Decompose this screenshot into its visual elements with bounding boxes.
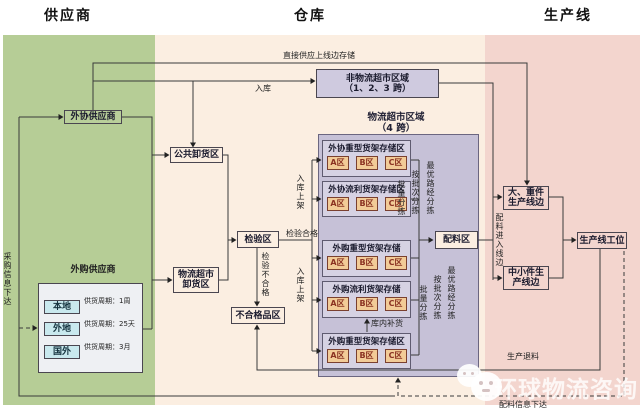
storage-area-purchased-heavy-2: 外购重型货架存储区 A区 B区 C区 bbox=[322, 333, 411, 369]
zone-cell: B区 bbox=[356, 256, 378, 270]
production-return-label: 生产退料 bbox=[507, 352, 539, 361]
defective-goods-box: 不合格品区 bbox=[231, 307, 285, 324]
zone-cell: A区 bbox=[327, 256, 349, 270]
supplier-nonlocal-box: 外地 bbox=[44, 322, 80, 336]
purchase-info-label: 采购信息下达 bbox=[3, 252, 12, 306]
storage-area-purchased-heavy: 外购重型货架存储 A区 B区 C区 bbox=[322, 240, 411, 277]
non-supermarket-area-box: 非物流超市区域 （1、2、3 跨） bbox=[316, 69, 439, 98]
logistics-flow-diagram: 供应商 仓库 生产线 bbox=[0, 0, 640, 415]
non-supermarket-line1: 非物流超市区域 bbox=[346, 74, 409, 84]
purchased-supplier-label: 外购供应商 bbox=[58, 266, 128, 275]
non-supermarket-line2: （1、2、3 跨） bbox=[344, 84, 411, 94]
inspection-box: 检验区 bbox=[237, 231, 279, 248]
zone-cell: B区 bbox=[356, 156, 378, 170]
inbound-label: 入库 bbox=[255, 84, 271, 93]
zone-cell: B区 bbox=[356, 197, 378, 211]
sort-label-route-lower: 最优路经分拣 bbox=[447, 266, 456, 320]
sort-label-route-upper: 最优路经分拣 bbox=[426, 161, 435, 215]
zone-cell: A区 bbox=[327, 156, 349, 170]
zone-cell: A区 bbox=[327, 297, 349, 311]
supermarket-area-label: 物流超市区域 （4 跨） bbox=[336, 113, 456, 134]
zone-cell: C区 bbox=[385, 297, 407, 311]
shelving-label-lower: 入库上架 bbox=[296, 267, 305, 303]
zone-cell: C区 bbox=[385, 349, 407, 363]
zone-cell: A区 bbox=[327, 197, 349, 211]
inspection-pass-label: 检验合格 bbox=[286, 229, 318, 238]
supply-cycle-foreign: 供货周期：3月 bbox=[84, 342, 130, 352]
supplier-local-box: 本地 bbox=[44, 300, 80, 314]
zone-cell: C区 bbox=[385, 156, 407, 170]
zone-cell: C区 bbox=[385, 256, 407, 270]
sort-label-batch-lower: 批量分拣 bbox=[419, 285, 428, 321]
production-station-box: 生产线工位 bbox=[577, 232, 627, 249]
heavy-lineside-box: 大、重件 生产线边 bbox=[503, 186, 549, 210]
supply-cycle-nonlocal: 供货周期：25天 bbox=[84, 319, 135, 329]
zone-cell: A区 bbox=[327, 349, 349, 363]
feed-lineside-label: 配料进入线边 bbox=[495, 213, 504, 267]
batching-area-box: 配料区 bbox=[435, 231, 478, 249]
sort-label-bylot-lower: 按批次分拣 bbox=[433, 275, 442, 320]
outsourced-supplier-box: 外协供应商 bbox=[64, 110, 122, 124]
storage-area-outsourced-heavy: 外协重型货架存储区 A区 B区 C区 bbox=[322, 140, 411, 177]
shelving-label-upper: 入库上架 bbox=[296, 174, 305, 210]
zone-cell: B区 bbox=[356, 297, 378, 311]
zone-cell: B区 bbox=[356, 349, 378, 363]
direct-supply-label: 直接供应上线边存储 bbox=[283, 51, 355, 60]
small-lineside-box: 中小件生 产线边 bbox=[503, 266, 549, 290]
supermarket-unloading-box: 物流超市 卸货区 bbox=[173, 267, 219, 293]
supply-cycle-local: 供货周期：1周 bbox=[84, 296, 130, 306]
public-unloading-box: 公共卸货区 bbox=[170, 147, 223, 163]
supplier-foreign-box: 国外 bbox=[44, 345, 80, 359]
sort-label-batch-upper: 批量分拣 bbox=[397, 180, 406, 216]
sort-label-bylot-upper: 按批次分拣 bbox=[411, 170, 420, 215]
replenish-label: 库内补货 bbox=[371, 319, 403, 328]
watermark-text: 环球物流咨询 bbox=[494, 370, 638, 404]
storage-area-purchased-flow: 外购流利货架存储 A区 B区 C区 bbox=[322, 281, 411, 318]
inspection-fail-label: 检验不合格 bbox=[261, 252, 270, 297]
